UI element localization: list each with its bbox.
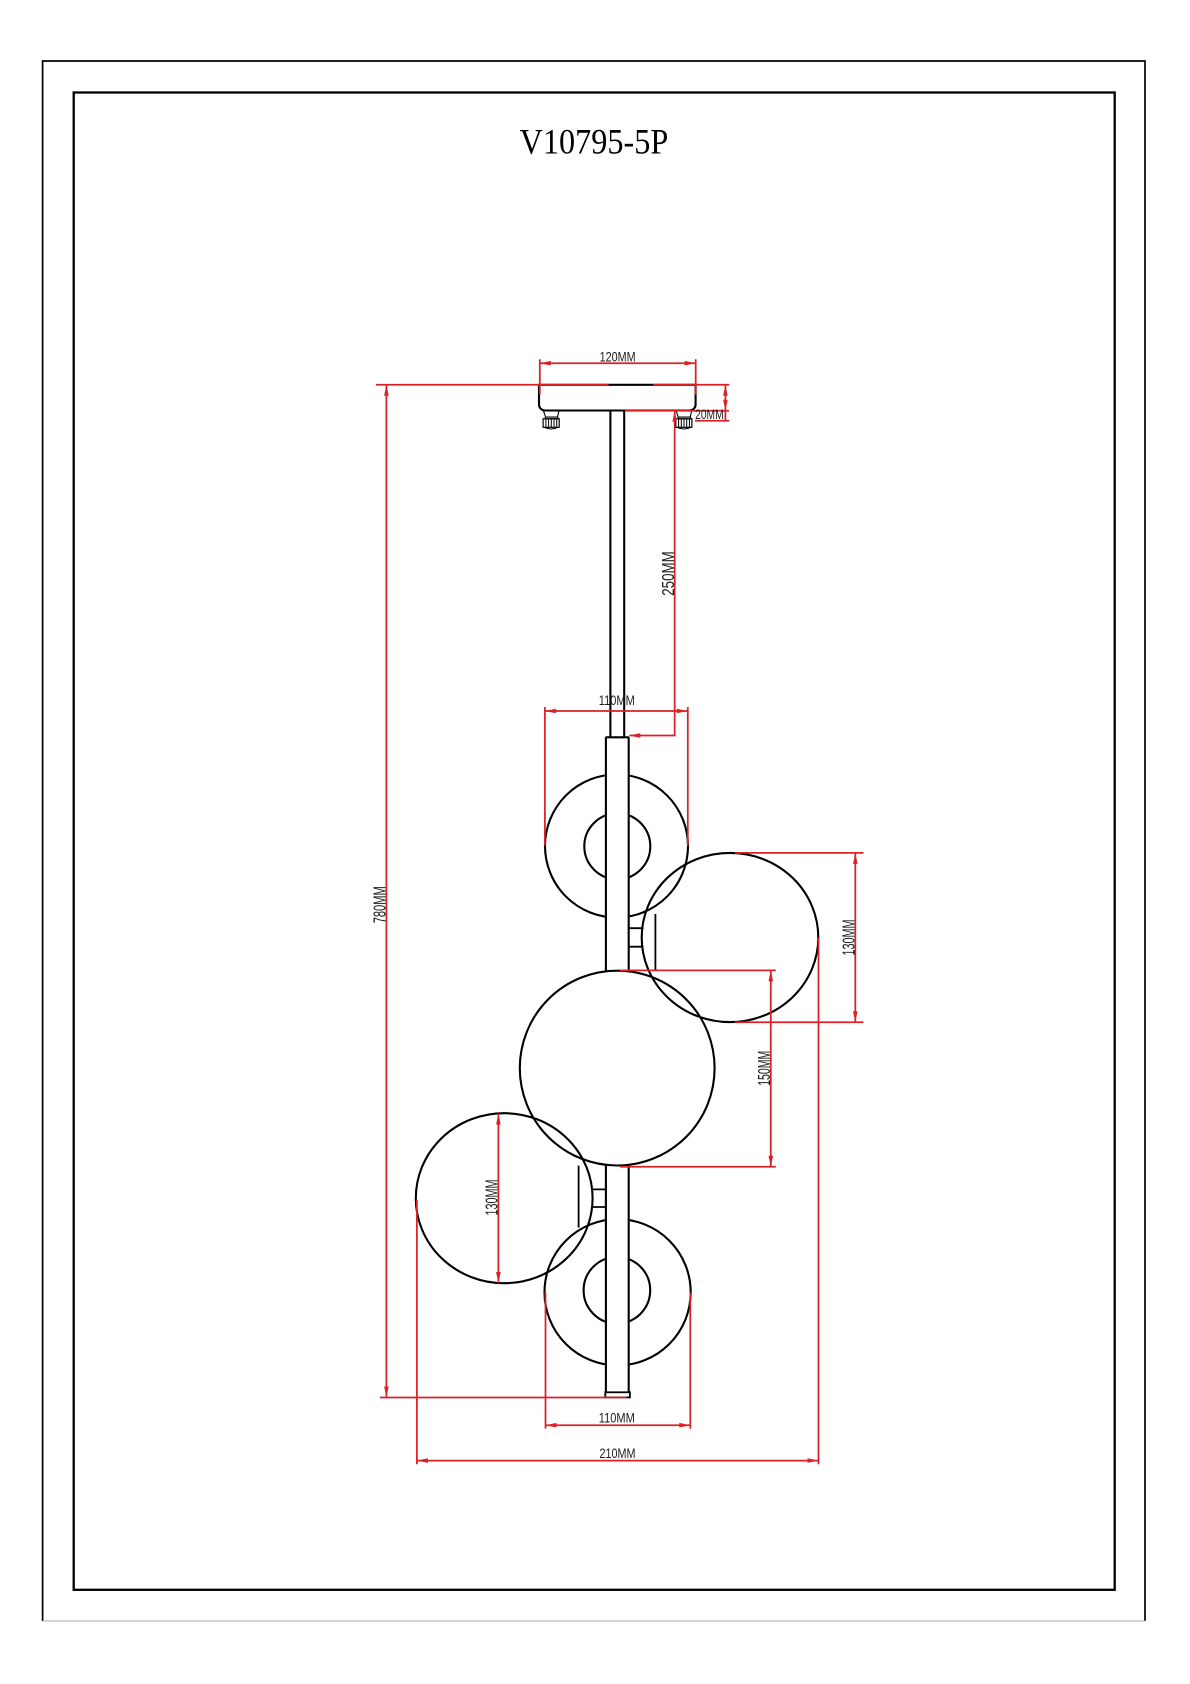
svg-text:130MM: 130MM bbox=[838, 920, 858, 956]
svg-text:130MM: 130MM bbox=[481, 1180, 501, 1216]
svg-text:250MM: 250MM bbox=[658, 551, 678, 596]
svg-text:150MM: 150MM bbox=[754, 1051, 774, 1086]
svg-text:20MM: 20MM bbox=[695, 406, 724, 422]
svg-text:110MM: 110MM bbox=[599, 692, 635, 708]
svg-text:V10795-5P: V10795-5P bbox=[520, 121, 669, 161]
svg-text:780MM: 780MM bbox=[370, 886, 390, 923]
svg-text:210MM: 210MM bbox=[600, 1445, 636, 1461]
svg-text:110MM: 110MM bbox=[599, 1410, 635, 1426]
svg-text:120MM: 120MM bbox=[600, 348, 636, 364]
